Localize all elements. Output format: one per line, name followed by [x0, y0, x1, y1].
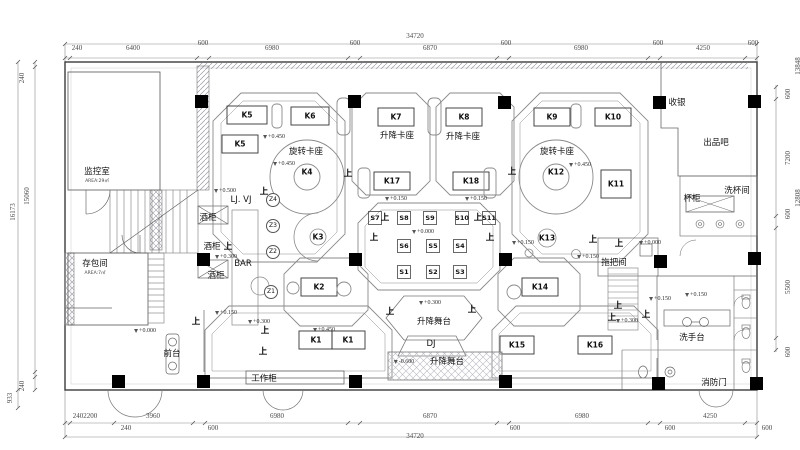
column	[348, 95, 361, 108]
label-ljvj: LJ. VJ	[231, 196, 252, 205]
table-K6: K6	[304, 112, 315, 120]
table-K15: K15	[509, 341, 525, 349]
elevation-mark: +0.450	[313, 327, 335, 333]
up-marker: 上	[370, 234, 379, 243]
label-wine-cabinet: 酒柜	[199, 214, 216, 223]
dim-right: 600	[784, 209, 792, 220]
label-fire-door: 消防门	[701, 379, 727, 388]
column	[349, 375, 362, 388]
dim-top: 240	[72, 44, 83, 52]
elevation-mark: +0.150	[685, 292, 707, 298]
up-marker: 上	[192, 318, 201, 327]
dim-bottom: 600	[665, 424, 676, 432]
dim-bottom: 2402200	[73, 412, 98, 420]
service-bar-area	[661, 62, 757, 256]
dim-top: 600	[653, 39, 664, 47]
dim-right: 600	[784, 347, 792, 358]
table-S1: S1	[399, 269, 408, 276]
up-marker: 上	[260, 188, 269, 197]
column	[349, 253, 362, 266]
up-marker: 上	[468, 306, 477, 315]
dim-left: 15060	[23, 187, 31, 205]
elevation-mark: +0.150	[512, 240, 534, 246]
up-marker: 上	[259, 348, 268, 357]
up-marker: 上	[615, 240, 624, 249]
label-dj: DJ	[426, 340, 435, 349]
dim-left: 240	[18, 73, 26, 84]
table-K16: K16	[587, 341, 603, 349]
dim-top: 600	[748, 39, 759, 47]
label-lift-stage: 升降舞台	[417, 318, 451, 327]
front-desk	[65, 308, 204, 374]
label-service-bar: 出品吧	[703, 139, 729, 148]
dim-right: 5500	[784, 280, 792, 294]
table-K12: K12	[548, 168, 564, 176]
table-K17: K17	[384, 177, 400, 185]
dim-top: 4250	[696, 44, 710, 52]
label-front-desk: 前台	[163, 350, 180, 359]
column	[499, 375, 512, 388]
dim-left-total: 16173	[9, 203, 17, 221]
elevation-mark: +0.300	[419, 300, 441, 306]
booth-pod-K2	[284, 258, 368, 326]
table-K10: K10	[605, 113, 621, 121]
column	[748, 252, 761, 265]
dim-right-total: 13848	[794, 57, 800, 75]
up-marker: 上	[589, 236, 598, 245]
up-marker: 上	[261, 327, 270, 336]
label-rotating-booth: 旋转卡座	[540, 148, 574, 157]
table-K2: K2	[313, 283, 324, 291]
dim-top: 6980	[574, 44, 588, 52]
label-mop-room: 拖把间	[601, 259, 627, 268]
table-K9: K9	[546, 113, 557, 121]
zone-tag-Z1: Z1	[264, 285, 278, 299]
dim-top-total: 34720	[406, 32, 424, 40]
dim-bottom: 3960	[146, 412, 160, 420]
column	[197, 375, 210, 388]
table-S4: S4	[455, 243, 464, 250]
table-K18: K18	[463, 177, 479, 185]
table-K1: K1	[342, 336, 353, 344]
elevation-mark: +0.450	[263, 134, 285, 140]
elevation-mark: +0.300	[616, 318, 638, 324]
booth-pod-K14	[498, 258, 580, 326]
dim-bottom: 600	[510, 424, 521, 432]
dim-left: 933	[6, 393, 14, 404]
dim-left: 240	[18, 381, 26, 392]
dim-bottom-total: 34720	[406, 432, 424, 440]
table-S2: S2	[428, 269, 437, 276]
table-S11: S11	[482, 215, 496, 222]
elevation-mark: +0.300	[215, 254, 237, 260]
elevation-mark: +0.000	[134, 328, 156, 334]
table-K14: K14	[532, 283, 548, 291]
up-marker: 上	[381, 214, 390, 223]
label-cup-cabinet: 杯柜	[683, 195, 700, 204]
column	[653, 96, 666, 109]
table-S10: S10	[455, 215, 469, 222]
floor-plan-drawing	[0, 0, 800, 450]
label-lift-booth: 升降卡座	[446, 133, 480, 142]
dim-right: 7200	[784, 151, 792, 165]
dim-top: 600	[198, 39, 209, 47]
label-bar: BAR	[234, 260, 252, 269]
label-rotating-booth: 旋转卡座	[289, 148, 323, 157]
table-S9: S9	[425, 215, 434, 222]
booth-pod-A	[213, 93, 345, 262]
table-K5: K5	[241, 111, 252, 119]
elevation-mark: +0.150	[649, 296, 671, 302]
monitor-room	[68, 72, 160, 214]
table-S6: S6	[399, 243, 408, 250]
room-label-storage: 存包间	[82, 260, 108, 269]
elevation-mark: +0.150	[385, 196, 407, 202]
dim-bottom: 600	[208, 424, 219, 432]
label-washstand: 洗手台	[679, 334, 705, 343]
up-marker: 上	[608, 314, 617, 323]
elevation-mark: +0.150	[215, 310, 237, 316]
dim-top: 600	[350, 39, 361, 47]
dim-bottom: 6870	[423, 412, 437, 420]
table-K3: K3	[312, 233, 323, 241]
dim-bottom: 4250	[703, 412, 717, 420]
column	[195, 95, 208, 108]
booth-pod-D	[512, 93, 648, 262]
up-marker: 上	[486, 234, 495, 243]
column	[499, 253, 512, 266]
column	[652, 377, 665, 390]
dim-bottom: 6980	[270, 412, 284, 420]
table-K8: K8	[458, 113, 469, 121]
service-stair	[148, 253, 164, 323]
dim-top: 6980	[265, 44, 279, 52]
elevation-mark: +0.150	[465, 196, 487, 202]
elevation-mark: +0.150	[577, 254, 599, 260]
up-marker: 上	[474, 214, 483, 223]
table-K4: K4	[301, 168, 312, 176]
table-K11: K11	[608, 180, 624, 188]
table-K5: K5	[234, 140, 245, 148]
table-K13: K13	[539, 234, 555, 242]
elevation-mark: +0.450	[569, 162, 591, 168]
label-lift-booth: 升降卡座	[380, 132, 414, 141]
label-wine-cabinet: 酒柜	[203, 243, 220, 252]
elevation-mark: -0.600	[394, 359, 415, 365]
label-lift-stage: 升降舞台	[430, 358, 464, 367]
elevation-mark: +0.500	[214, 188, 236, 194]
dim-right-total: 12808	[794, 189, 800, 207]
entrance-doors	[108, 390, 733, 417]
dim-top: 6400	[126, 44, 140, 52]
room-area-storage: AREA:7㎡	[85, 272, 106, 277]
dim-bottom: 6980	[575, 412, 589, 420]
elevation-mark: +0.000	[412, 229, 434, 235]
storage-room	[68, 235, 148, 325]
table-S3: S3	[455, 269, 464, 276]
label-work-cabinet: 工作柜	[251, 375, 277, 384]
elevation-mark: +0.000	[639, 240, 661, 246]
dim-bottom: 240	[121, 424, 132, 432]
label-cup-washing: 洗杯间	[724, 187, 750, 196]
elevation-mark: +0.300	[248, 319, 270, 325]
dim-bottom: 600	[762, 424, 773, 432]
room-area-monitor: AREA:29㎡	[85, 180, 109, 185]
table-K7: K7	[390, 113, 401, 121]
elevation-mark: +0.450	[273, 161, 295, 167]
up-marker: 上	[224, 243, 233, 252]
column	[654, 255, 667, 268]
column	[498, 96, 511, 109]
dim-top: 6870	[423, 44, 437, 52]
zone-tag-Z3: Z3	[266, 219, 280, 233]
up-marker: 上	[614, 302, 623, 311]
floor-plan-canvas: 3472024064006006980600687060069806004250…	[0, 0, 800, 450]
column	[748, 95, 761, 108]
label-wine-cabinet: 酒柜	[207, 272, 224, 281]
table-K1: K1	[310, 336, 321, 344]
zone-tag-Z2: Z2	[266, 245, 280, 259]
label-cashier: 收银	[668, 99, 685, 108]
booth-pod-E	[205, 306, 392, 378]
table-S7: S7	[370, 215, 379, 222]
table-S8: S8	[399, 215, 408, 222]
dim-top: 600	[501, 39, 512, 47]
up-marker: 上	[642, 311, 651, 320]
room-label-monitor: 监控室	[84, 168, 110, 177]
up-marker: 上	[508, 168, 517, 177]
table-S5: S5	[428, 243, 437, 250]
column	[112, 375, 125, 388]
dim-right: 600	[784, 89, 792, 100]
up-marker: 上	[386, 308, 395, 317]
column	[197, 253, 210, 266]
up-marker: 上	[344, 170, 353, 179]
column	[750, 377, 763, 390]
